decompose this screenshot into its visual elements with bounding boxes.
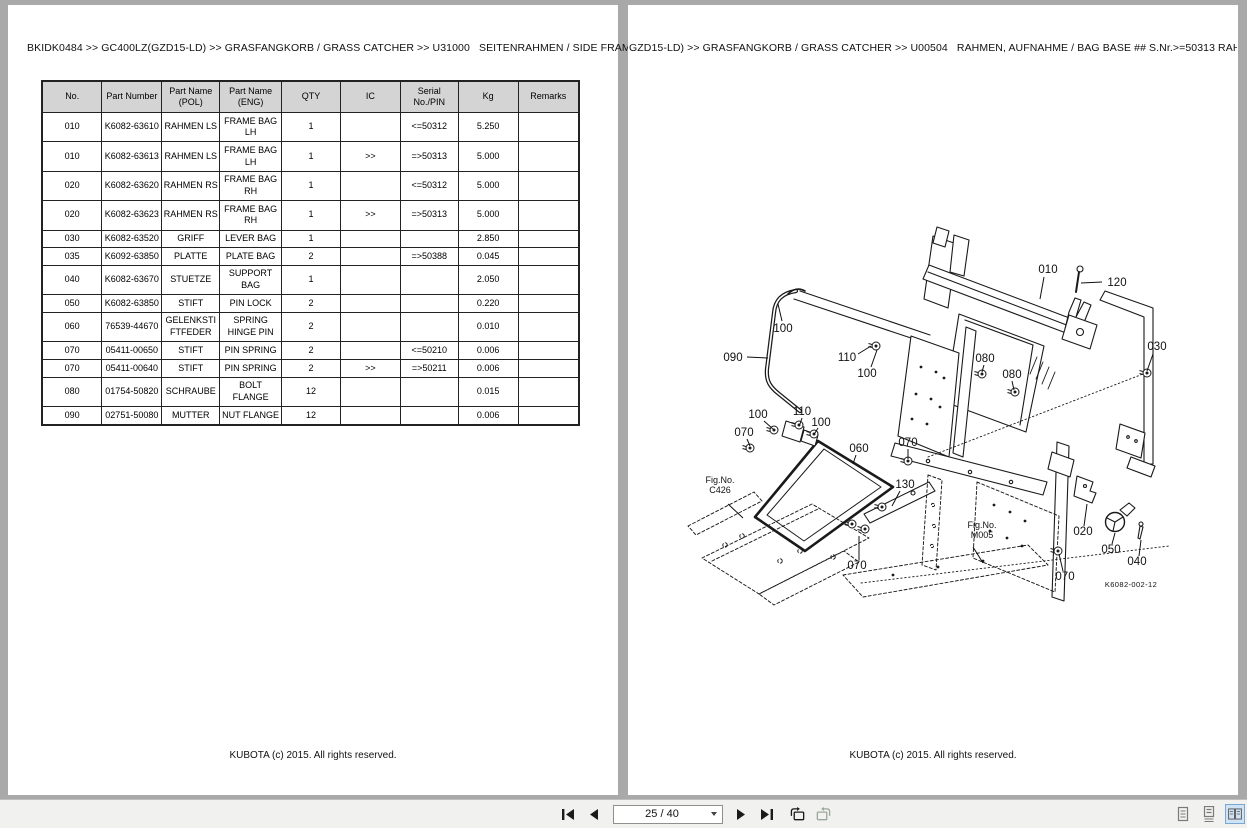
table-cell: >> <box>340 201 400 230</box>
table-row: 035K6092-63850PLATTEPLATE BAG2=>503880.0… <box>42 248 579 266</box>
callout-label: 100 <box>773 323 792 335</box>
table-cell: 010 <box>42 113 102 142</box>
parts-table-body: 010K6082-63610RAHMEN LSFRAME BAG LH1<=50… <box>42 113 579 425</box>
callout-label: 010 <box>1038 264 1057 276</box>
table-cell: K6082-63613 <box>102 142 162 171</box>
table-row: 050K6082-63850STIFTPIN LOCK20.220 <box>42 295 579 313</box>
callout-label: 080 <box>975 353 994 365</box>
callout-label: 100 <box>811 417 830 429</box>
parts-table: No.Part NumberPart Name (POL)Part Name (… <box>41 80 580 426</box>
table-cell: LEVER BAG <box>220 230 282 248</box>
table-cell: K6092-63850 <box>102 248 162 266</box>
column-header: QTY <box>282 81 341 113</box>
table-cell: SUPPORT BAG <box>220 265 282 294</box>
table-cell: PIN SPRING <box>220 360 282 378</box>
column-header: Kg <box>458 81 518 113</box>
table-cell <box>518 230 579 248</box>
dropdown-caret-icon <box>711 812 717 816</box>
table-cell: 090 <box>42 407 102 425</box>
table-cell: 05411-00640 <box>102 360 162 378</box>
table-cell <box>340 407 400 425</box>
table-cell: 12 <box>282 407 341 425</box>
callout-leader <box>1084 504 1087 526</box>
left-page-footer: KUBOTA (c) 2015. All rights reserved. <box>8 750 618 761</box>
facing-pages-icon <box>1228 806 1242 822</box>
table-cell <box>400 312 458 341</box>
table-cell <box>518 265 579 294</box>
table-cell <box>518 342 579 360</box>
table-cell: K6082-63850 <box>102 295 162 313</box>
table-cell: 2 <box>282 295 341 313</box>
figure-reference-label: Fig.No. <box>967 520 996 530</box>
table-cell: K6082-63520 <box>102 230 162 248</box>
table-row: 020K6082-63623RAHMEN RSFRAME BAG RH1>>=>… <box>42 201 579 230</box>
first-page-button[interactable] <box>559 803 579 825</box>
page-indicator: 25 / 40 <box>614 808 711 820</box>
column-header: No. <box>42 81 102 113</box>
continuous-pages-icon <box>1202 806 1216 822</box>
table-cell: MUTTER <box>162 407 220 425</box>
table-cell <box>340 171 400 200</box>
table-cell: =>50388 <box>400 248 458 266</box>
table-cell: 1 <box>282 265 341 294</box>
table-cell: 5.000 <box>458 201 518 230</box>
table-cell: NUT FLANGE <box>220 407 282 425</box>
right-page: GZD15-LD) >> GRASFANGKORB / GRASS CATCHE… <box>628 5 1238 795</box>
callout-label: 100 <box>748 409 767 421</box>
table-row: 030K6082-63520GRIFFLEVER BAG12.850 <box>42 230 579 248</box>
callout-label: 120 <box>1107 277 1126 289</box>
table-cell: FRAME BAG LH <box>220 113 282 142</box>
previous-view-icon <box>790 807 806 822</box>
table-cell: >> <box>340 142 400 171</box>
next-view-icon <box>815 807 831 822</box>
table-cell: 0.045 <box>458 248 518 266</box>
callout-leader <box>871 350 877 367</box>
table-row: 020K6082-63620RAHMEN RSFRAME BAG RH1<=50… <box>42 171 579 200</box>
table-row: 040K6082-63670STUETZESUPPORT BAG12.050 <box>42 265 579 294</box>
table-cell: <=50210 <box>400 342 458 360</box>
table-cell: 030 <box>42 230 102 248</box>
callout-label: 060 <box>849 443 868 455</box>
table-cell: STIFT <box>162 295 220 313</box>
callout-label: 040 <box>1127 556 1146 568</box>
table-cell: 5.000 <box>458 142 518 171</box>
table-cell: 2.850 <box>458 230 518 248</box>
column-header: IC <box>340 81 400 113</box>
table-cell: 1 <box>282 171 341 200</box>
next-page-button[interactable] <box>732 803 752 825</box>
callout-label: 070 <box>847 560 866 572</box>
table-cell: K6082-63670 <box>102 265 162 294</box>
table-cell: =>50313 <box>400 201 458 230</box>
table-cell: GELENKSTIFTFEDER <box>162 312 220 341</box>
column-header: Part Name (POL) <box>162 81 220 113</box>
table-cell: 5.000 <box>458 171 518 200</box>
table-cell: 040 <box>42 265 102 294</box>
table-cell: GRIFF <box>162 230 220 248</box>
table-cell: 05411-00650 <box>102 342 162 360</box>
next-view-button[interactable] <box>813 803 833 825</box>
left-page: BKIDK0484 >> GC400LZ(GZD15-LD) >> GRASFA… <box>8 5 618 795</box>
column-header: Serial No./PIN <box>400 81 458 113</box>
table-cell: 020 <box>42 171 102 200</box>
table-cell: BOLT FLANGE <box>220 377 282 406</box>
table-cell <box>340 248 400 266</box>
table-cell <box>518 201 579 230</box>
table-cell: 12 <box>282 377 341 406</box>
callout-leader <box>1112 533 1115 544</box>
table-cell: STIFT <box>162 342 220 360</box>
previous-view-button[interactable] <box>788 803 808 825</box>
table-cell: K6082-63623 <box>102 201 162 230</box>
continuous-view-button[interactable] <box>1199 804 1219 824</box>
table-cell: 080 <box>42 377 102 406</box>
figure-reference-label: Fig.No. <box>705 475 734 485</box>
figure-reference-leader <box>728 504 743 518</box>
table-cell: 02751-50080 <box>102 407 162 425</box>
table-cell: PLATE BAG <box>220 248 282 266</box>
table-cell <box>518 360 579 378</box>
callout-leader <box>1139 540 1141 556</box>
table-cell: 0.006 <box>458 342 518 360</box>
table-cell <box>518 407 579 425</box>
table-cell: RAHMEN RS <box>162 171 220 200</box>
column-header: Remarks <box>518 81 579 113</box>
callout-label: 050 <box>1101 544 1120 556</box>
next-page-icon <box>736 808 747 821</box>
figure-reference-label: C426 <box>709 485 731 495</box>
table-cell: 050 <box>42 295 102 313</box>
previous-page-button[interactable] <box>584 803 604 825</box>
table-cell: 2 <box>282 360 341 378</box>
left-breadcrumb: BKIDK0484 >> GC400LZ(GZD15-LD) >> GRASFA… <box>27 42 638 54</box>
figure-reference-label: M005 <box>971 530 994 540</box>
table-cell <box>340 230 400 248</box>
table-cell: FRAME BAG LH <box>220 142 282 171</box>
table-row: 07005411-00650STIFTPIN SPRING2<=502100.0… <box>42 342 579 360</box>
table-cell: RAHMEN LS <box>162 142 220 171</box>
callout-label: 100 <box>857 368 876 380</box>
table-cell: PLATTE <box>162 248 220 266</box>
table-cell <box>518 312 579 341</box>
callout-label: 070 <box>898 437 917 449</box>
callout-leader <box>747 357 768 358</box>
table-cell <box>518 295 579 313</box>
table-cell: 0.006 <box>458 360 518 378</box>
table-row: 08001754-50820SCHRAUBEBOLT FLANGE120.015 <box>42 377 579 406</box>
page-navigation-group: 25 / 40 <box>559 800 833 828</box>
table-row: 07005411-00640STIFTPIN SPRING2>>=>502110… <box>42 360 579 378</box>
table-cell <box>400 230 458 248</box>
table-cell <box>340 312 400 341</box>
table-cell <box>400 377 458 406</box>
table-cell <box>340 265 400 294</box>
table-cell: 01754-50820 <box>102 377 162 406</box>
previous-page-icon <box>588 808 599 821</box>
table-cell: SPRING HINGE PIN <box>220 312 282 341</box>
table-row: 06076539-44670GELENKSTIFTFEDERSPRING HIN… <box>42 312 579 341</box>
right-page-footer: KUBOTA (c) 2015. All rights reserved. <box>628 750 1238 761</box>
table-cell: PIN LOCK <box>220 295 282 313</box>
callout-leader <box>1040 277 1044 299</box>
column-header: Part Number <box>102 81 162 113</box>
table-cell: RAHMEN LS <box>162 113 220 142</box>
table-cell <box>518 248 579 266</box>
callout-label: 020 <box>1073 526 1092 538</box>
table-cell <box>340 295 400 313</box>
table-cell: PIN SPRING <box>220 342 282 360</box>
callout-leader <box>1081 282 1102 283</box>
table-cell <box>518 377 579 406</box>
callout-leader <box>858 346 871 354</box>
table-cell: >> <box>340 360 400 378</box>
table-cell: 0.006 <box>458 407 518 425</box>
table-cell: K6082-63620 <box>102 171 162 200</box>
facing-pages-view-button[interactable] <box>1225 804 1245 824</box>
table-cell: 2 <box>282 248 341 266</box>
single-page-icon <box>1176 806 1190 822</box>
table-cell: 0.010 <box>458 312 518 341</box>
table-cell <box>340 113 400 142</box>
column-header: Part Name (ENG) <box>220 81 282 113</box>
table-cell: 070 <box>42 360 102 378</box>
table-cell: =>50313 <box>400 142 458 171</box>
page-number-combobox[interactable]: 25 / 40 <box>613 805 723 824</box>
table-cell: STUETZE <box>162 265 220 294</box>
table-cell: 0.015 <box>458 377 518 406</box>
table-cell: STIFT <box>162 360 220 378</box>
table-cell: RAHMEN RS <box>162 201 220 230</box>
table-cell: 1 <box>282 230 341 248</box>
table-cell: 2 <box>282 342 341 360</box>
table-cell: 2.050 <box>458 265 518 294</box>
callout-label: 090 <box>723 352 742 364</box>
table-cell: 020 <box>42 201 102 230</box>
table-cell <box>518 113 579 142</box>
table-cell: 070 <box>42 342 102 360</box>
table-cell: <=50312 <box>400 113 458 142</box>
table-row: 09002751-50080MUTTERNUT FLANGE120.006 <box>42 407 579 425</box>
table-cell: 2 <box>282 312 341 341</box>
table-cell: FRAME BAG RH <box>220 201 282 230</box>
table-cell: =>50211 <box>400 360 458 378</box>
callout-label: 030 <box>1147 341 1166 353</box>
table-row: 010K6082-63613RAHMEN LSFRAME BAG LH1>>=>… <box>42 142 579 171</box>
table-cell: 76539-44670 <box>102 312 162 341</box>
table-cell: 5.250 <box>458 113 518 142</box>
table-cell: 035 <box>42 248 102 266</box>
table-cell: 1 <box>282 113 341 142</box>
table-cell <box>400 407 458 425</box>
table-cell: <=50312 <box>400 171 458 200</box>
table-cell <box>400 295 458 313</box>
table-row: 010K6082-63610RAHMEN LSFRAME BAG LH1<=50… <box>42 113 579 142</box>
table-cell: 1 <box>282 142 341 171</box>
table-cell: 010 <box>42 142 102 171</box>
last-page-button[interactable] <box>757 803 777 825</box>
callout-label: 080 <box>1002 369 1021 381</box>
table-cell <box>340 377 400 406</box>
table-cell <box>518 171 579 200</box>
callout-label: 110 <box>838 352 856 364</box>
table-cell: 1 <box>282 201 341 230</box>
parts-table-head: No.Part NumberPart Name (POL)Part Name (… <box>42 81 579 113</box>
table-cell: 060 <box>42 312 102 341</box>
first-page-icon <box>561 808 576 821</box>
table-cell <box>518 142 579 171</box>
figure-reference-leader <box>973 547 983 563</box>
callout-label: 110 <box>793 406 811 418</box>
callout-label: 070 <box>1055 571 1074 583</box>
table-cell: K6082-63610 <box>102 113 162 142</box>
callout-label: 070 <box>734 427 753 439</box>
table-cell: SCHRAUBE <box>162 377 220 406</box>
exploded-parts-diagram: 0101201000901101000300800801001101000700… <box>628 5 1238 795</box>
table-cell <box>340 342 400 360</box>
table-cell: FRAME BAG RH <box>220 171 282 200</box>
callout-label: 130 <box>895 479 914 491</box>
page-layout-group <box>1173 800 1245 828</box>
single-page-view-button[interactable] <box>1173 804 1193 824</box>
table-cell <box>400 265 458 294</box>
callout-leader <box>778 304 782 321</box>
viewer-toolbar: 25 / 40 <box>0 799 1247 828</box>
drawing-number: K6082-002-12 <box>1105 580 1157 589</box>
last-page-icon <box>759 808 774 821</box>
table-cell: 0.220 <box>458 295 518 313</box>
